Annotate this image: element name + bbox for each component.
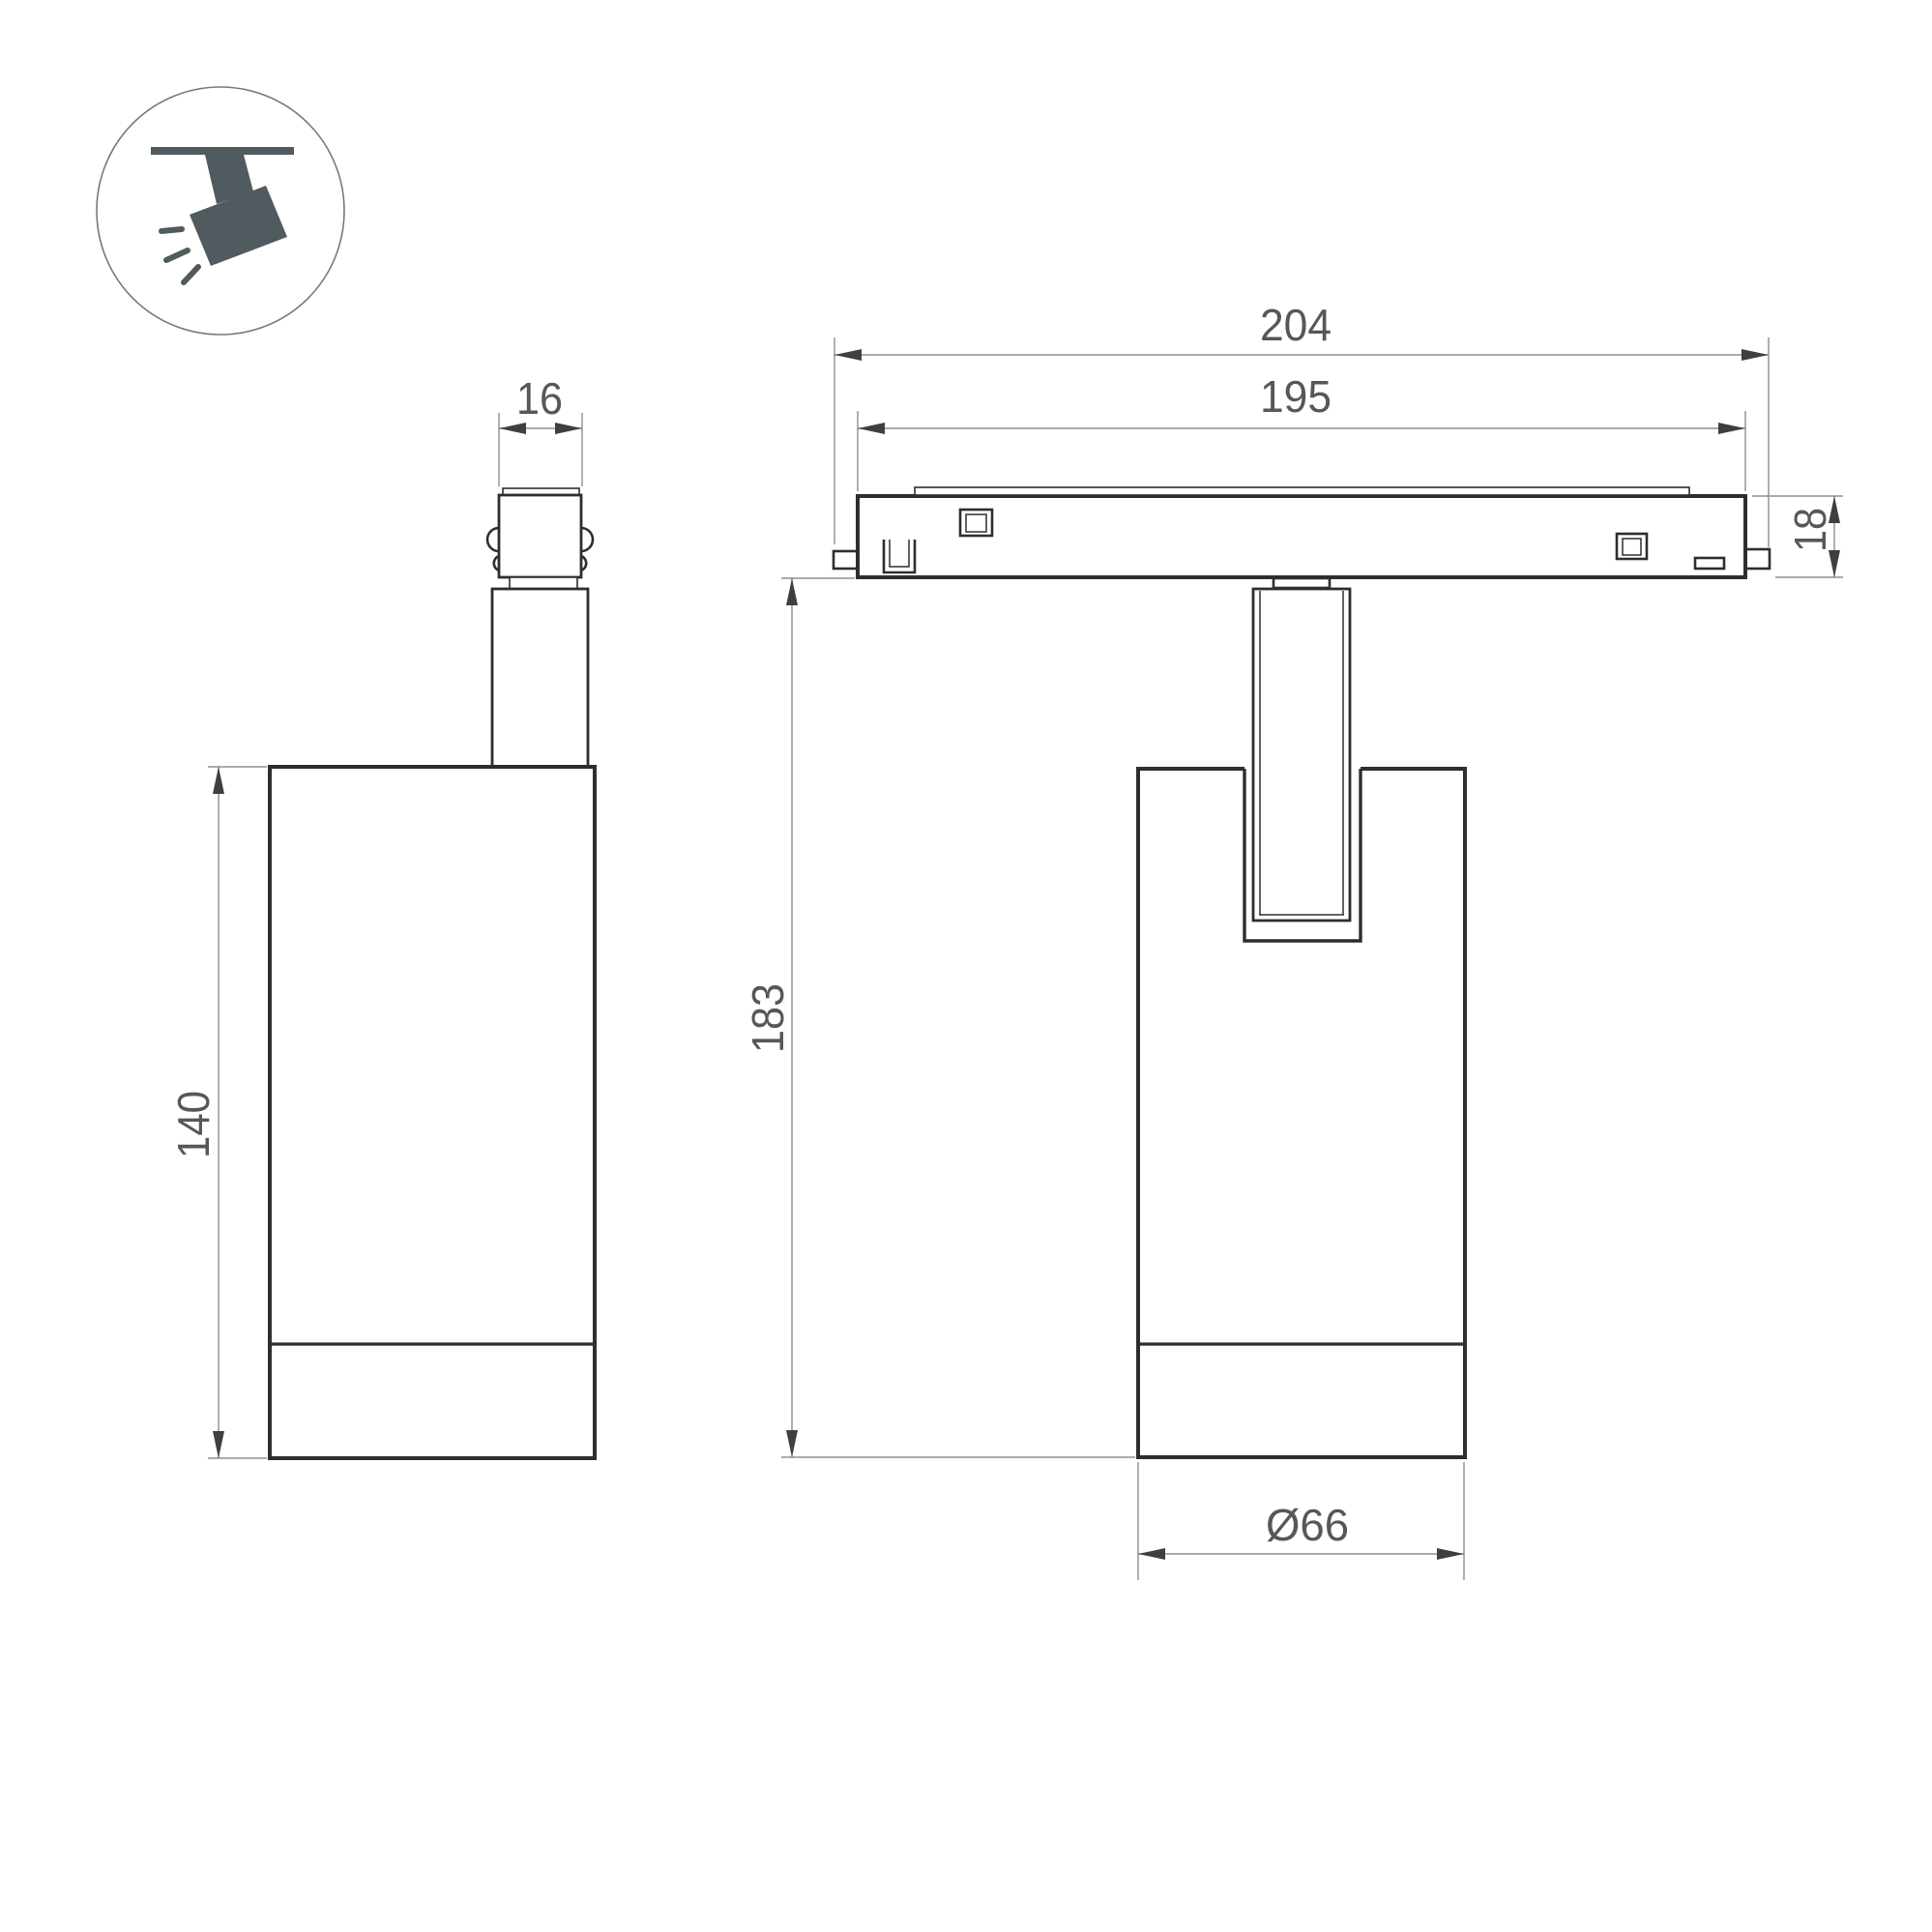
icon-light-ray xyxy=(161,229,182,231)
icon-ceiling-track-bar xyxy=(151,147,294,155)
dimension-140: 140 xyxy=(168,767,267,1458)
dimension-183: 183 xyxy=(743,578,1135,1457)
adapter-block xyxy=(499,495,581,577)
side-view: 16 140 xyxy=(168,373,595,1458)
dimension-label-diameter-66: Ø66 xyxy=(1266,1500,1349,1550)
track-spotlight-icon xyxy=(97,87,344,335)
dimension-label-16: 16 xyxy=(516,373,563,424)
track-left-connector-tab xyxy=(834,551,858,569)
stem-mount-nub xyxy=(1273,578,1330,588)
track-top-strip xyxy=(915,487,1689,495)
dimension-d66: Ø66 xyxy=(1138,1462,1464,1580)
dimension-label-183: 183 xyxy=(743,983,793,1053)
adapter-clip-right-upper xyxy=(581,528,593,551)
dimension-drawing-canvas: 16 140 xyxy=(0,0,1932,1932)
stem xyxy=(492,589,588,767)
dimension-label-195: 195 xyxy=(1260,371,1332,422)
dimension-label-204: 204 xyxy=(1260,300,1332,350)
dimension-195: 195 xyxy=(858,371,1745,491)
dimension-label-18: 18 xyxy=(1785,508,1835,552)
technical-drawing-page: 16 140 xyxy=(0,0,1932,1932)
lamp-body xyxy=(270,767,595,1458)
dimension-16: 16 xyxy=(499,373,582,486)
stem xyxy=(1253,589,1350,921)
stem-neck xyxy=(510,577,577,589)
front-view: 204 195 18 183 xyxy=(743,300,1843,1580)
dimension-label-140: 140 xyxy=(168,1091,219,1158)
adapter-clip-left-upper xyxy=(487,528,499,551)
dimension-18: 18 xyxy=(1752,496,1843,577)
track-right-connector-tab xyxy=(1745,549,1770,569)
